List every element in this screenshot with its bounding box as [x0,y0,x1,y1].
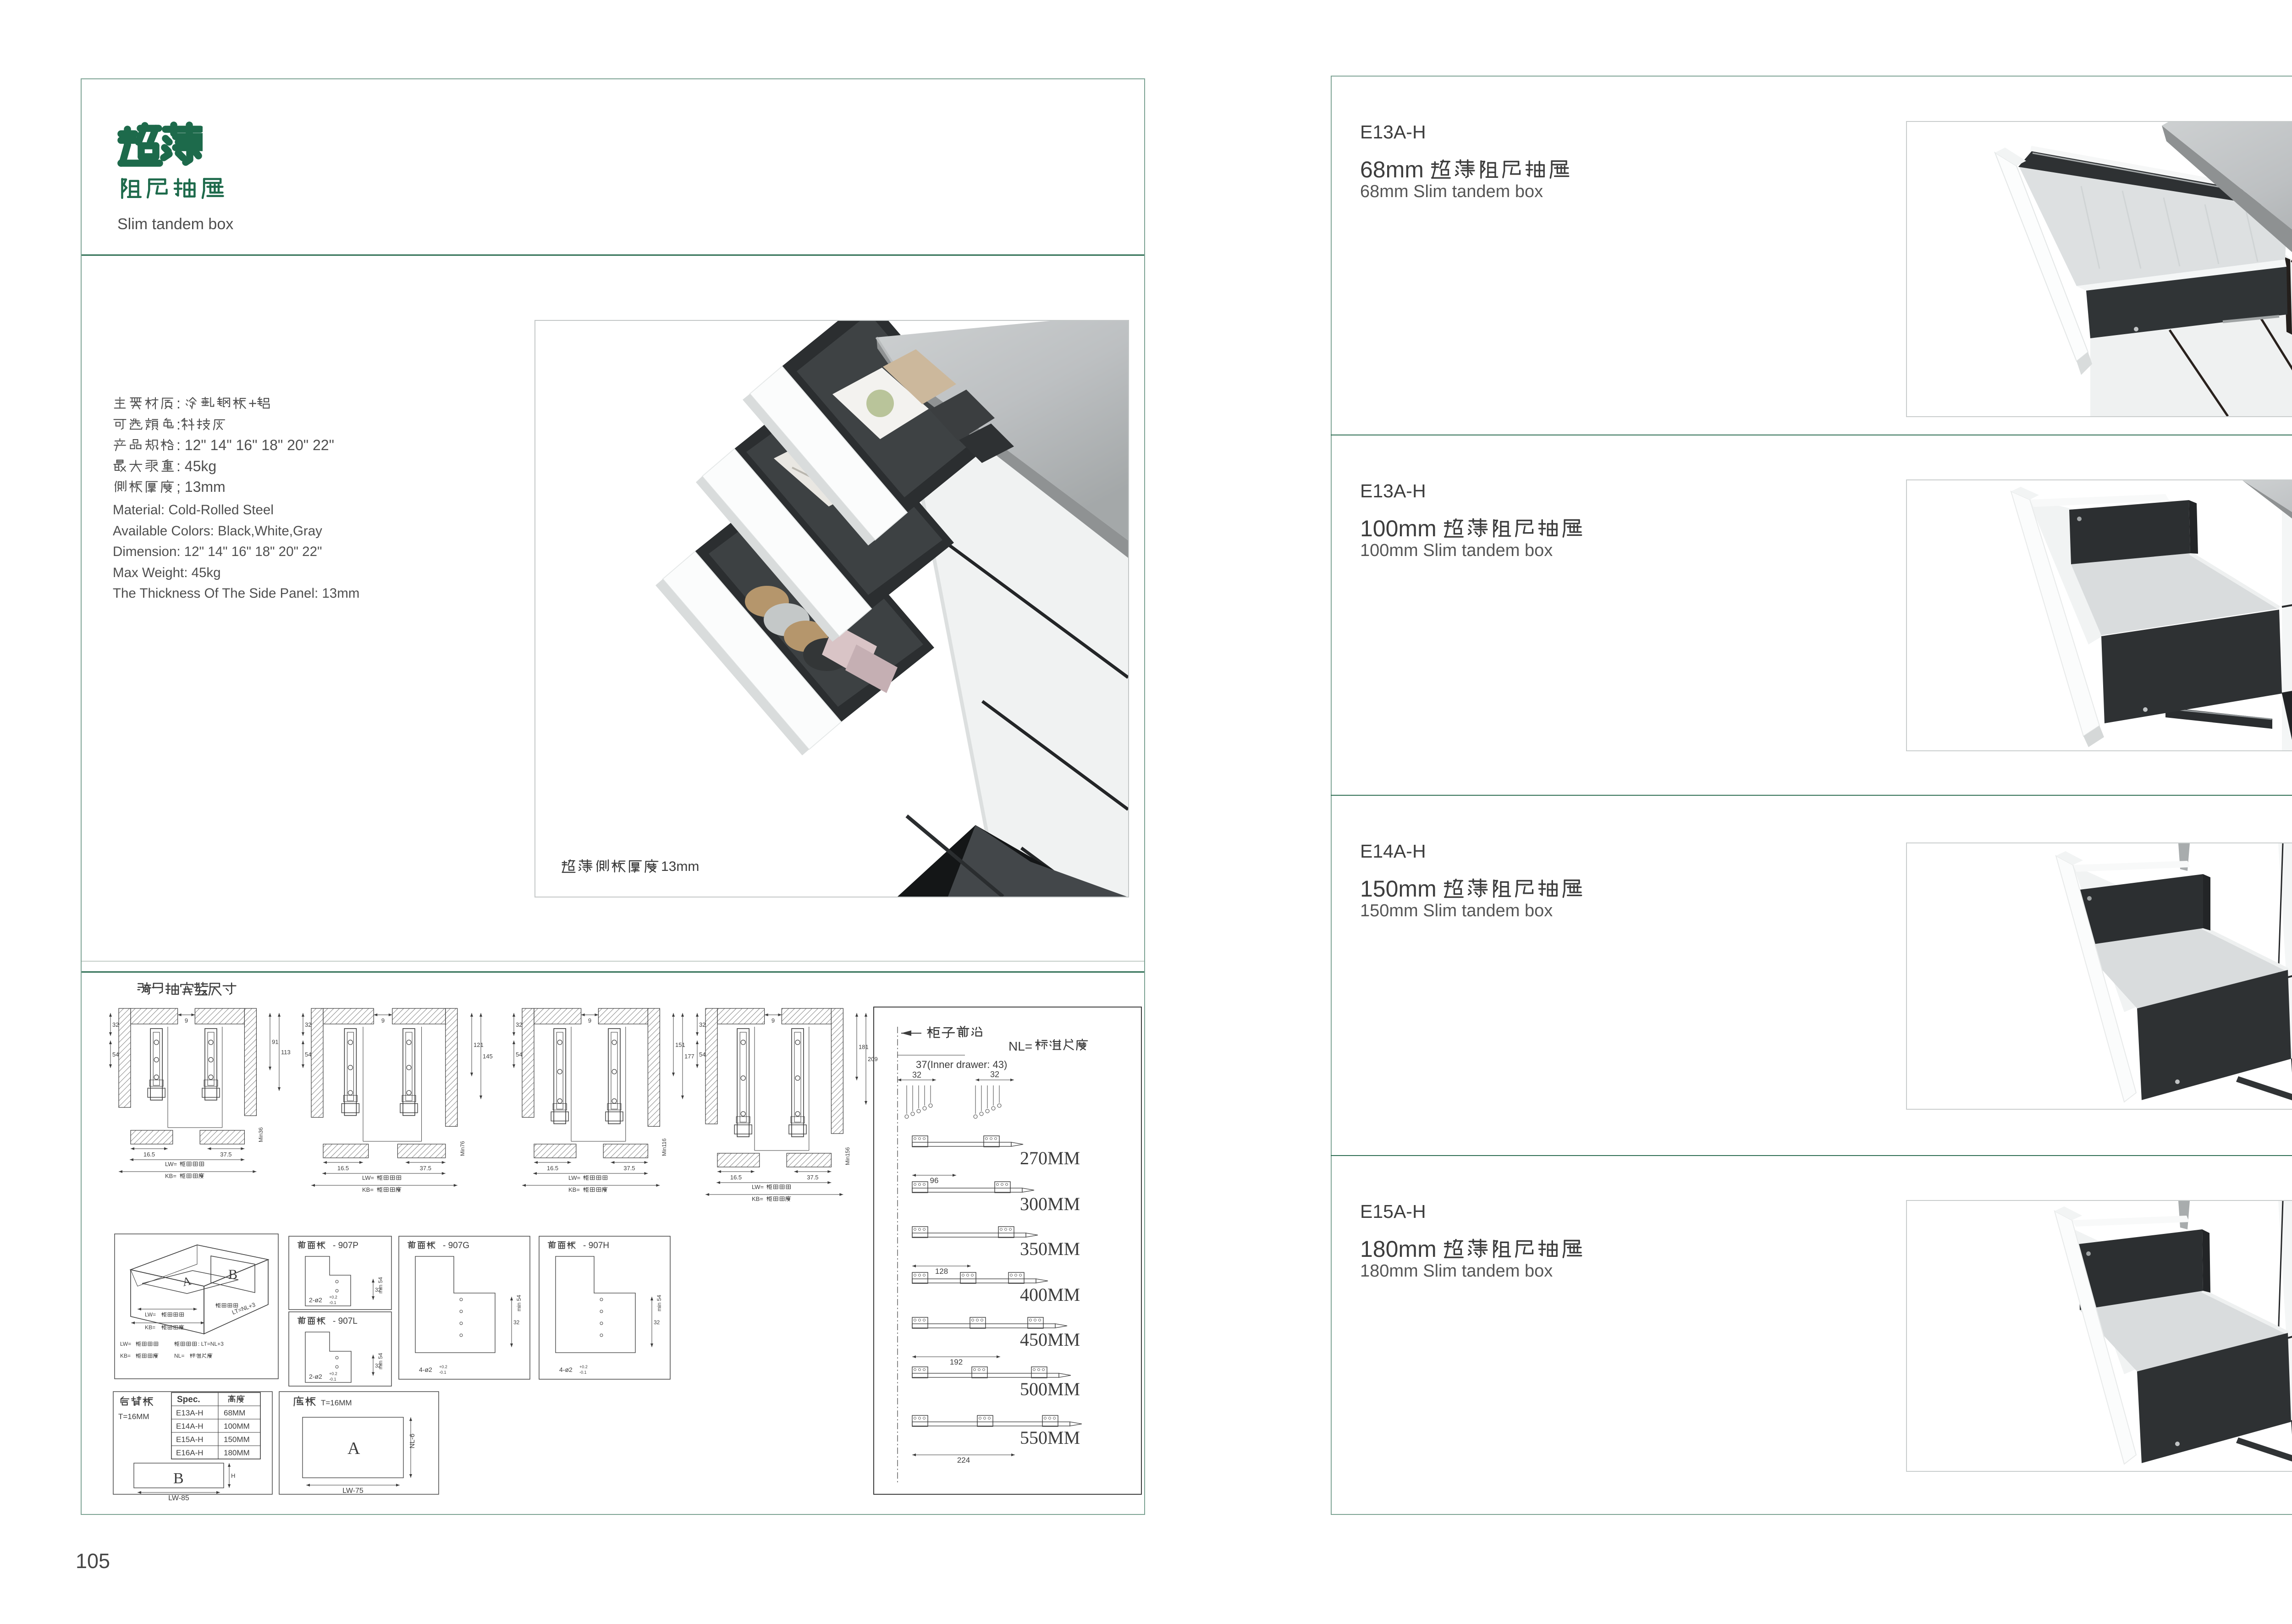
svg-text:min 54: min 54 [377,1353,384,1369]
svg-text:32: 32 [516,1021,522,1028]
svg-text:300MM: 300MM [1020,1194,1080,1214]
svg-text:37.5: 37.5 [220,1151,231,1158]
svg-text:LW=: LW= [568,1174,580,1181]
svg-text:- 907G: - 907G [443,1241,469,1250]
svg-text:350MM: 350MM [1020,1239,1080,1259]
svg-text:91: 91 [272,1039,278,1046]
svg-text:KB=: KB= [165,1173,176,1179]
svg-text:E15A-H: E15A-H [176,1435,204,1444]
svg-text:9: 9 [381,1017,385,1024]
svg-text:-0.1: -0.1 [329,1377,336,1382]
svg-text:121: 121 [474,1041,484,1048]
svg-text:LW=: LW= [362,1174,374,1181]
svg-text:32: 32 [305,1021,311,1028]
svg-text:B: B [173,1470,184,1487]
svg-text:32: 32 [513,1319,520,1326]
svg-text:LW=: LW= [145,1311,156,1318]
svg-text:E13A-H: E13A-H [176,1409,204,1417]
svg-text:+0.2: +0.2 [329,1295,337,1299]
svg-text:B: B [228,1267,237,1282]
svg-text:E14A-H: E14A-H [176,1422,204,1431]
svg-text:min 54: min 54 [656,1295,662,1311]
svg-text:min 54: min 54 [377,1277,384,1294]
svg-text:H: H [231,1472,235,1479]
svg-text:+0.2: +0.2 [579,1365,588,1369]
svg-text:209: 209 [868,1056,878,1062]
svg-text:177: 177 [684,1053,694,1060]
svg-text:32: 32 [699,1021,705,1028]
svg-text:LW=: LW= [165,1161,177,1167]
svg-text:- 907L: - 907L [333,1316,358,1326]
svg-text:Min36: Min36 [258,1127,264,1142]
svg-text:T=16MM: T=16MM [118,1412,149,1421]
svg-text:128: 128 [935,1267,948,1276]
svg-text:9: 9 [588,1017,591,1024]
svg-text:192: 192 [950,1358,963,1366]
svg-text:150MM: 150MM [224,1435,250,1444]
svg-text:224: 224 [957,1456,970,1464]
svg-text:NL=: NL= [1008,1039,1032,1053]
svg-text:16.5: 16.5 [547,1165,558,1172]
svg-text:4-ø2: 4-ø2 [559,1366,573,1373]
svg-text:: LT=NL+3: : LT=NL+3 [198,1341,224,1347]
svg-text:16.5: 16.5 [730,1174,742,1181]
svg-text:min 54: min 54 [516,1295,522,1311]
svg-text:16.5: 16.5 [143,1151,155,1158]
svg-text:145: 145 [483,1053,493,1060]
svg-text:LW-75: LW-75 [342,1487,364,1495]
svg-text:+0.2: +0.2 [439,1365,447,1369]
svg-text:32: 32 [112,1021,119,1028]
svg-text:-0.1: -0.1 [579,1370,587,1375]
svg-text:-0.1: -0.1 [439,1370,446,1375]
svg-text:270MM: 270MM [1020,1148,1080,1168]
svg-text:NL-6: NL-6 [408,1433,416,1448]
svg-text:KB=: KB= [362,1186,374,1193]
svg-text:Min76: Min76 [459,1141,466,1156]
svg-text:550MM: 550MM [1020,1427,1080,1448]
svg-text:100MM: 100MM [224,1422,250,1431]
svg-text:2-ø2: 2-ø2 [309,1373,322,1380]
svg-text:KB=: KB= [120,1353,131,1359]
svg-text:113: 113 [281,1049,291,1056]
svg-text:9: 9 [771,1017,775,1024]
svg-text:54: 54 [516,1051,522,1058]
svg-text:KB=: KB= [568,1186,580,1193]
svg-text:9: 9 [185,1017,188,1024]
svg-text:E16A-H: E16A-H [176,1448,204,1457]
svg-text:- 907P: - 907P [333,1241,358,1250]
svg-text:181: 181 [859,1044,869,1051]
svg-text:400MM: 400MM [1020,1284,1080,1305]
svg-text:+0.2: +0.2 [329,1371,337,1376]
svg-text:37.5: 37.5 [623,1165,635,1172]
svg-text:16.5: 16.5 [337,1165,349,1172]
svg-text:96: 96 [930,1176,939,1185]
svg-text:2-ø2: 2-ø2 [309,1296,322,1304]
svg-text:KB=: KB= [145,1324,155,1331]
svg-text:180MM: 180MM [224,1448,250,1457]
svg-text:Min116: Min116 [661,1138,667,1156]
svg-text:37.5: 37.5 [807,1174,818,1181]
svg-text:T=16MM: T=16MM [321,1398,352,1407]
svg-text:68MM: 68MM [224,1409,245,1417]
svg-text:-0.1: -0.1 [329,1300,336,1305]
svg-text:- 907H: - 907H [583,1241,609,1250]
svg-text:151: 151 [675,1041,685,1048]
svg-text:37.5: 37.5 [420,1165,431,1172]
svg-text:32: 32 [654,1319,660,1326]
svg-text:54: 54 [699,1051,705,1058]
svg-text:A: A [347,1439,360,1458]
svg-text:54: 54 [305,1051,311,1058]
svg-text:NL=: NL= [174,1353,184,1359]
svg-text:32: 32 [912,1070,921,1079]
svg-text:LW=: LW= [752,1184,764,1190]
svg-text:500MM: 500MM [1020,1379,1080,1399]
svg-text:LW=: LW= [120,1341,131,1347]
svg-text:LT=NL+3: LT=NL+3 [231,1301,256,1316]
svg-text:Min156: Min156 [844,1147,851,1165]
svg-text:A: A [181,1274,193,1289]
svg-text:LW-85: LW-85 [168,1494,189,1502]
svg-text:4-ø2: 4-ø2 [419,1366,432,1373]
svg-text:Spec.: Spec. [177,1395,200,1404]
svg-text:54: 54 [112,1051,119,1058]
svg-text:37(Inner drawer: 43): 37(Inner drawer: 43) [916,1059,1007,1070]
svg-text:32: 32 [990,1070,999,1079]
svg-text:450MM: 450MM [1020,1329,1080,1350]
svg-text:KB=: KB= [752,1195,763,1202]
